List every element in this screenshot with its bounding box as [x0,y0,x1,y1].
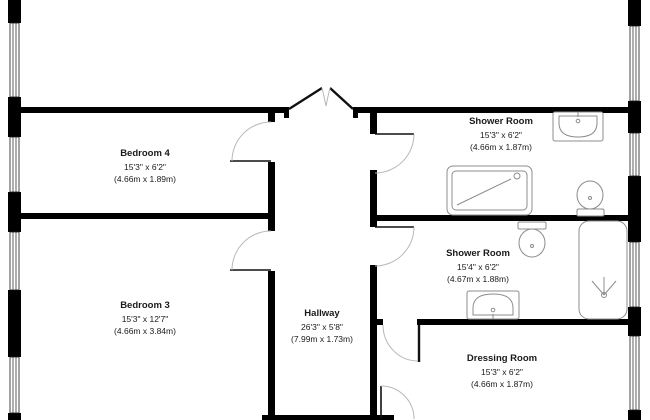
room-size-metric: (4.67m x 1.88m) [393,273,563,286]
room-name: Bedroom 3 [60,300,230,313]
room-size-imperial: 15'4" x 6'2" [393,261,563,274]
room-name: Bedroom 4 [60,148,230,161]
sink-icon-bottom [467,291,519,319]
room-size-metric: (4.66m x 1.87m) [417,378,587,391]
window-icon-left-4 [10,357,19,413]
room-size-metric: (4.66m x 1.89m) [60,173,230,186]
room-size-imperial: 15'3" x 12'7" [60,313,230,326]
room-size-imperial: 15'3" x 6'2" [60,161,230,174]
room-name: Dressing Room [417,353,587,366]
room-label-shower-room-bottom: Shower Room 15'4" x 6'2" (4.67m x 1.88m) [393,248,563,286]
shower-room-top-door [375,134,414,173]
room-size-metric: (4.66m x 1.87m) [416,141,586,154]
room-size-imperial: 15'3" x 6'2" [416,129,586,142]
window-icon-right-3 [630,242,639,307]
room-name: Shower Room [393,248,563,261]
window-icon-left-3 [10,232,19,290]
floor-plan: Bedroom 4 15'3" x 6'2" (4.66m x 1.89m) S… [0,0,650,420]
room-label-shower-room-top: Shower Room 15'3" x 6'2" (4.66m x 1.87m) [416,116,586,154]
bathtub-shower-icon [579,221,627,319]
toilet-icon-top [577,181,604,216]
room-size-imperial: 26'3" x 5'8" [247,321,397,334]
window-icon-right-2 [630,133,639,176]
bedroom4-door [230,122,271,161]
room-label-dressing-room: Dressing Room 15'3" x 6'2" (4.66m x 1.87… [417,353,587,391]
room-size-metric: (4.66m x 3.84m) [60,325,230,338]
bottom-edge-door [381,386,414,419]
window-icon-right-4 [630,336,639,410]
window-icon-left-1 [10,23,19,97]
room-size-metric: (7.99m x 1.73m) [247,333,397,346]
window-icon-left-2 [10,137,19,192]
window-icon-right-1 [630,26,639,101]
bedroom3-door [230,231,271,270]
room-label-bedroom-3: Bedroom 3 15'3" x 12'7" (4.66m x 3.84m) [60,300,230,338]
room-size-imperial: 15'3" x 6'2" [417,366,587,379]
shower-tray-icon [447,166,532,215]
room-label-hallway: Hallway 26'3" x 5'8" (7.99m x 1.73m) [247,308,397,346]
double-door-top-room [289,88,353,109]
room-label-bedroom-4: Bedroom 4 15'3" x 6'2" (4.66m x 1.89m) [60,148,230,186]
room-name: Hallway [247,308,397,321]
room-name: Shower Room [416,116,586,129]
